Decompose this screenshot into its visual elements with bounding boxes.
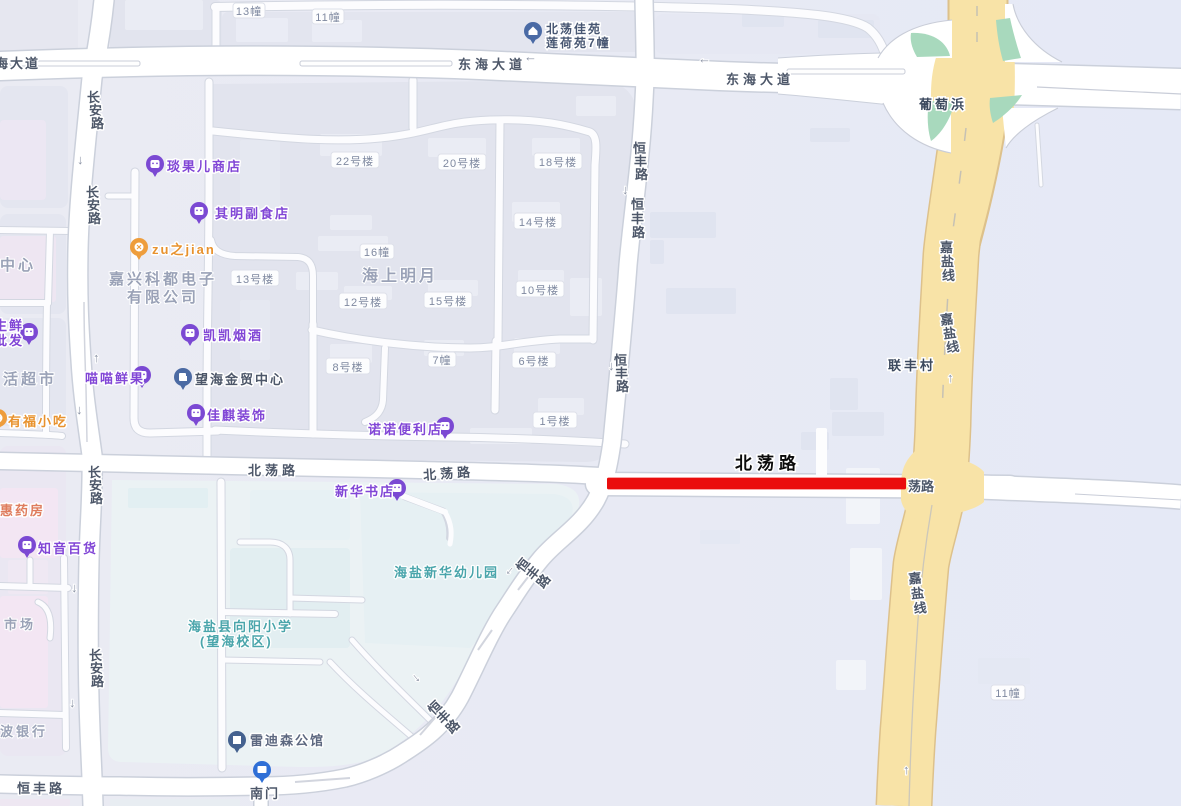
- svg-text:嘉: 嘉: [907, 570, 923, 586]
- svg-text:7幢: 7幢: [432, 353, 451, 367]
- svg-text:←: ←: [524, 49, 537, 64]
- svg-text:路: 路: [91, 116, 105, 131]
- svg-text:10号楼: 10号楼: [521, 283, 559, 297]
- svg-text:16幢: 16幢: [364, 245, 390, 259]
- svg-text:波银行: 波银行: [0, 724, 48, 739]
- svg-text:联丰村: 联丰村: [888, 358, 936, 373]
- svg-text:市场: 市场: [4, 617, 36, 632]
- svg-text:惠药房: 惠药房: [0, 503, 45, 518]
- svg-text:路: 路: [88, 211, 102, 226]
- svg-text:北荡路: 北荡路: [248, 463, 299, 478]
- svg-text:有限公司: 有限公司: [127, 288, 199, 306]
- svg-text:(望海校区): (望海校区): [200, 634, 273, 649]
- svg-text:22号楼: 22号楼: [336, 154, 374, 168]
- svg-text:恒: 恒: [631, 197, 644, 212]
- svg-text:活超市: 活超市: [3, 370, 57, 388]
- svg-text:凯凯烟酒: 凯凯烟酒: [203, 328, 263, 343]
- svg-text:路: 路: [90, 491, 104, 506]
- svg-text:↑: ↑: [93, 350, 100, 365]
- svg-text:↓: ↓: [69, 695, 76, 710]
- svg-text:线: 线: [942, 268, 955, 283]
- svg-text:14号楼: 14号楼: [519, 215, 557, 229]
- svg-text:佳麒装饰: 佳麒装饰: [207, 408, 267, 423]
- svg-text:新华书店: 新华书店: [335, 484, 395, 499]
- svg-text:路: 路: [91, 674, 105, 689]
- svg-text:北荡佳苑: 北荡佳苑: [546, 21, 602, 36]
- svg-text:盐: 盐: [910, 585, 925, 601]
- svg-text:11幢: 11幢: [995, 686, 1020, 700]
- svg-text:13号楼: 13号楼: [236, 272, 274, 286]
- svg-text:盐: 盐: [941, 254, 954, 269]
- svg-text:20号楼: 20号楼: [443, 156, 481, 170]
- svg-text:东海大道: 东海大道: [726, 72, 794, 87]
- svg-text:海盐新华幼儿园: 海盐新华幼儿园: [394, 565, 499, 580]
- svg-text:路: 路: [635, 167, 649, 182]
- svg-text:15号楼: 15号楼: [429, 294, 467, 308]
- svg-text:雷迪森公馆: 雷迪森公馆: [250, 733, 325, 748]
- svg-text:海盐县向阳小学: 海盐县向阳小学: [188, 619, 293, 634]
- svg-text:批发: 批发: [0, 333, 24, 348]
- svg-text:线: 线: [913, 600, 928, 616]
- svg-text:葡萄浜: 葡萄浜: [918, 97, 967, 112]
- svg-text:路: 路: [632, 225, 646, 240]
- svg-text:↓: ↓: [608, 358, 615, 373]
- svg-text:莲荷苑7幢: 莲荷苑7幢: [546, 35, 611, 50]
- svg-text:↓: ↓: [76, 402, 83, 417]
- svg-text:生鲜: 生鲜: [0, 318, 24, 333]
- svg-text:↓: ↓: [622, 182, 629, 197]
- svg-text:东海大道: 东海大道: [458, 57, 526, 72]
- svg-text:南门: 南门: [250, 786, 280, 801]
- svg-text:线: 线: [945, 339, 960, 356]
- svg-text:路: 路: [616, 379, 630, 394]
- svg-text:嘉: 嘉: [939, 240, 953, 255]
- svg-text:诺诺便利店: 诺诺便利店: [368, 422, 443, 437]
- svg-text:北荡路: 北荡路: [735, 453, 801, 473]
- svg-text:琰果儿商店: 琰果儿商店: [167, 159, 242, 174]
- svg-text:海大道: 海大道: [0, 56, 40, 71]
- svg-text:丰: 丰: [631, 211, 644, 226]
- svg-text:荡路: 荡路: [908, 479, 935, 494]
- svg-text:海上明月: 海上明月: [362, 266, 438, 285]
- svg-text:望海金贸中心: 望海金贸中心: [195, 372, 285, 387]
- svg-text:←: ←: [698, 51, 711, 66]
- svg-text:18号楼: 18号楼: [539, 155, 577, 169]
- svg-text:8号楼: 8号楼: [332, 360, 363, 374]
- svg-text:喵喵鲜果: 喵喵鲜果: [85, 371, 145, 386]
- svg-text:zu之jian: zu之jian: [152, 242, 216, 257]
- svg-text:有福小吃: 有福小吃: [8, 414, 68, 429]
- svg-text:↓: ↓: [77, 152, 84, 167]
- svg-text:11幢: 11幢: [315, 10, 340, 24]
- svg-text:12号楼: 12号楼: [344, 295, 382, 309]
- svg-text:恒丰路: 恒丰路: [17, 781, 65, 796]
- svg-text:↑: ↑: [947, 370, 954, 385]
- svg-text:↑: ↑: [903, 762, 910, 777]
- svg-text:6号楼: 6号楼: [518, 354, 549, 368]
- svg-text:1号楼: 1号楼: [539, 414, 570, 428]
- svg-text:知音百货: 知音百货: [38, 541, 98, 556]
- svg-text:嘉兴科都电子: 嘉兴科都电子: [108, 270, 217, 288]
- svg-text:其明副食店: 其明副食店: [215, 206, 290, 221]
- svg-text:中心: 中心: [0, 256, 36, 274]
- svg-text:↓: ↓: [71, 580, 78, 595]
- svg-text:13幢: 13幢: [236, 4, 262, 18]
